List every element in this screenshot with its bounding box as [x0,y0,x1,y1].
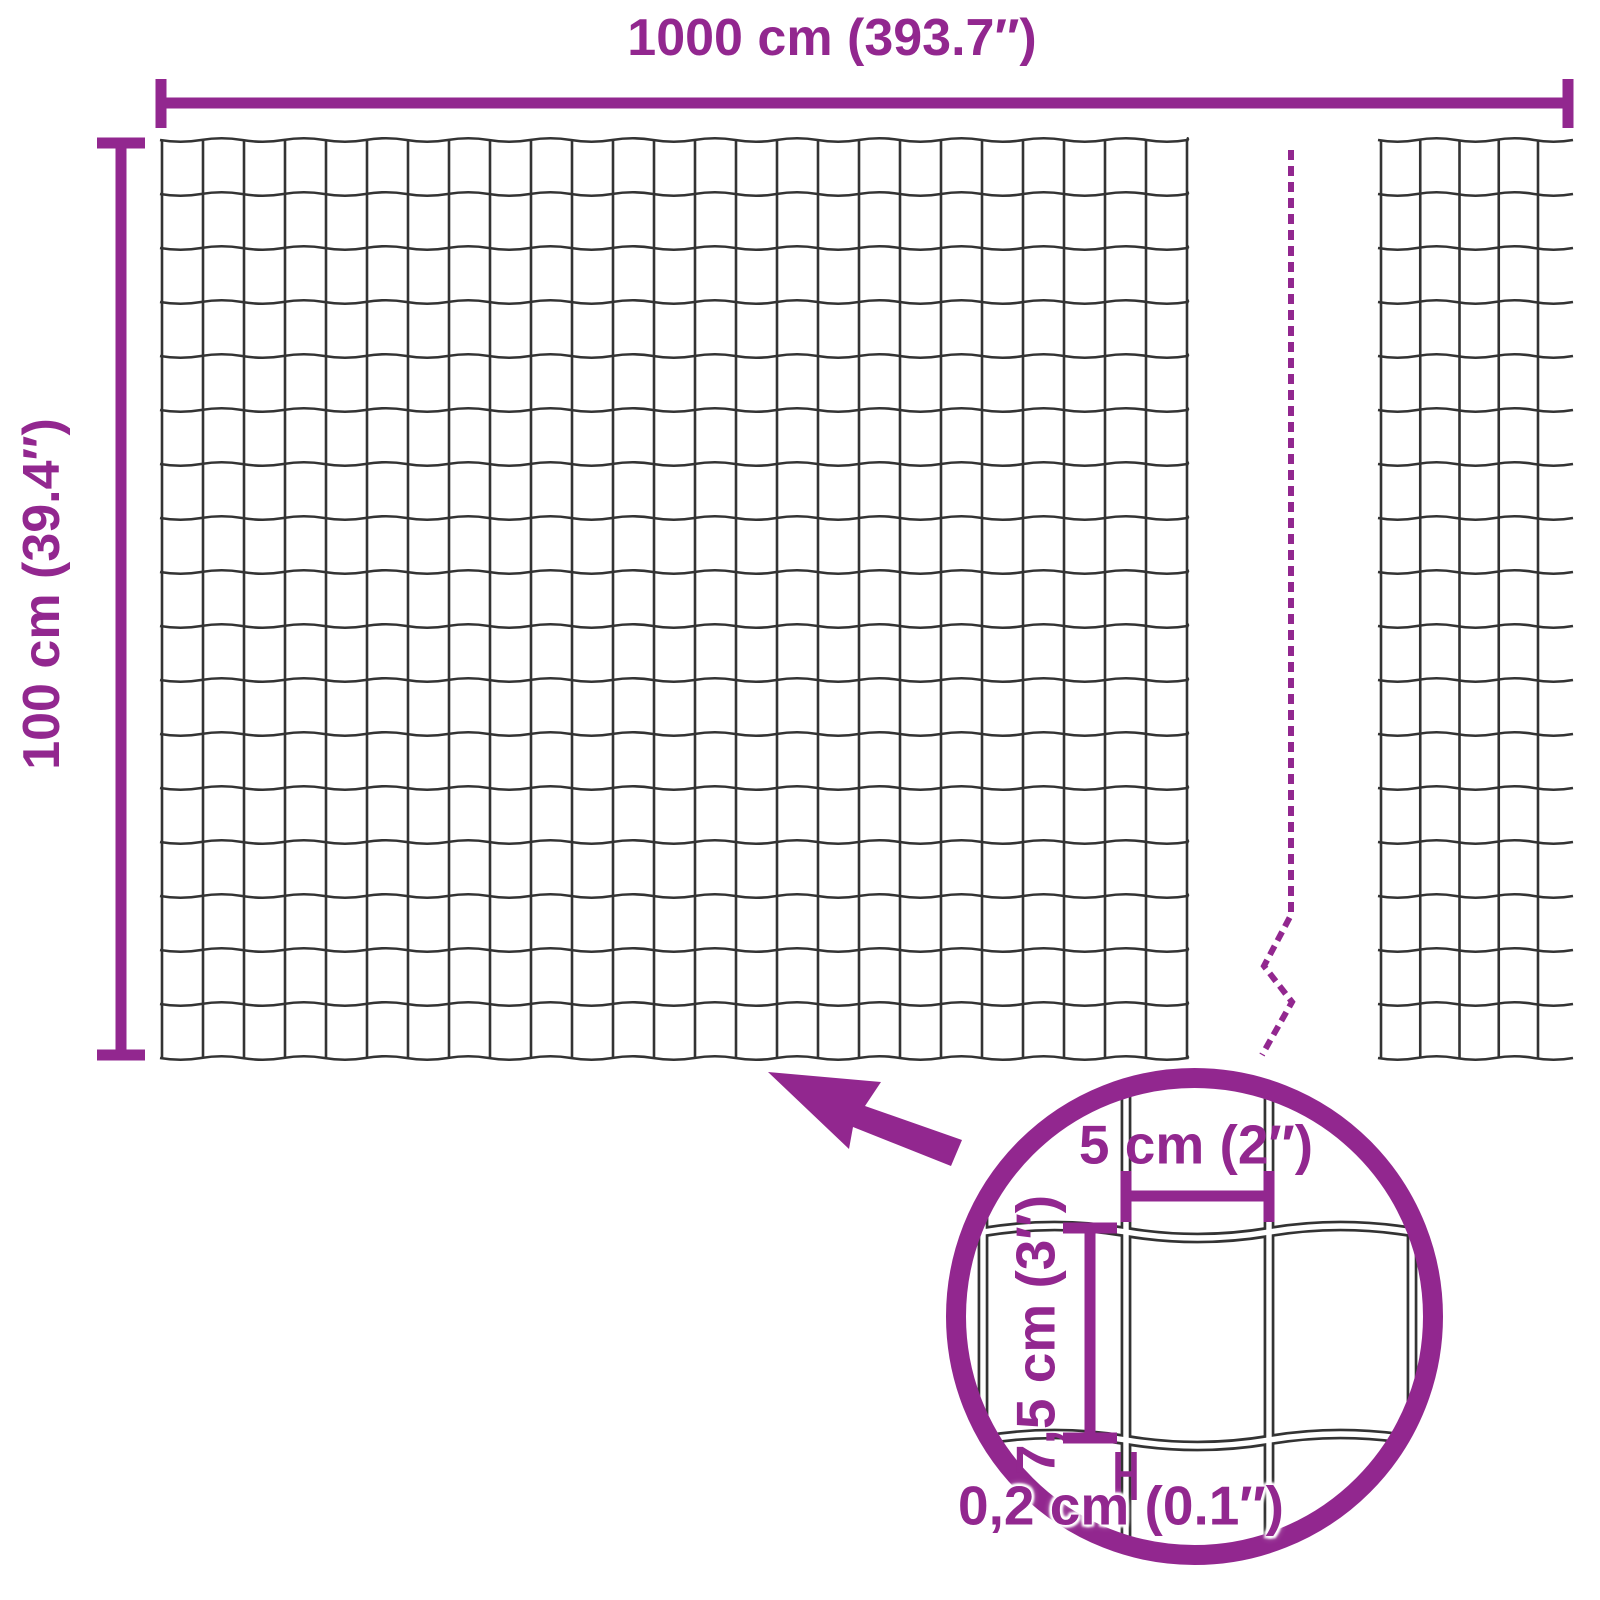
detail-wire-thickness-label: 0,2 cm (0.1″) [958,1479,1284,1534]
diagram-canvas [0,0,1600,1600]
zoom-arrow-icon [768,1072,962,1166]
break-dashed-line-icon [1262,150,1292,1055]
width-dimension-label: 1000 cm (393.7″) [627,12,1036,64]
mesh-panel-left [160,138,1188,1060]
height-dimension-label: 100 cm (39.4″) [16,418,68,770]
width-dimension-line [160,79,1570,128]
detail-mesh-height-label: 7,5 cm (3″) [1009,1195,1064,1475]
mesh-panel-right [1378,138,1573,1060]
detail-mesh-width-label: 5 cm (2″) [1079,1118,1313,1173]
height-dimension-line [97,142,145,1056]
product-dimension-diagram: 1000 cm (393.7″) 100 cm (39.4″) 5 cm (2″… [0,0,1600,1600]
